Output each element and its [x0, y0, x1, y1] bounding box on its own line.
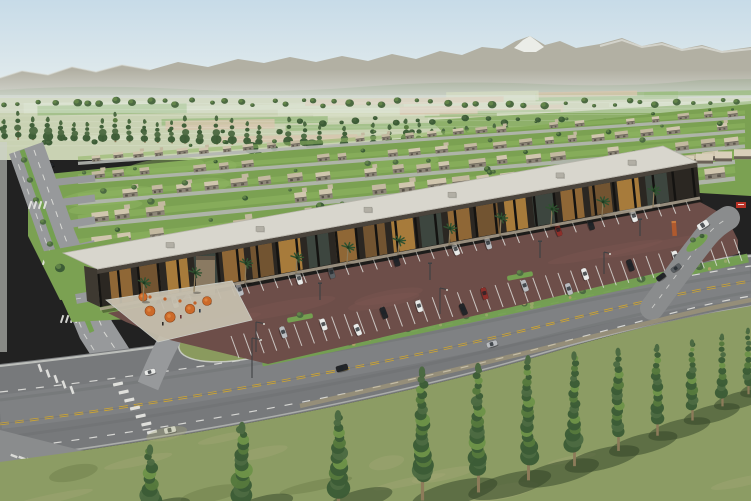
pedestrian	[180, 315, 182, 319]
render-canvas	[0, 0, 751, 501]
aerial-render-scene	[0, 0, 751, 501]
pedestrian	[162, 322, 164, 326]
pedestrian	[199, 309, 201, 313]
